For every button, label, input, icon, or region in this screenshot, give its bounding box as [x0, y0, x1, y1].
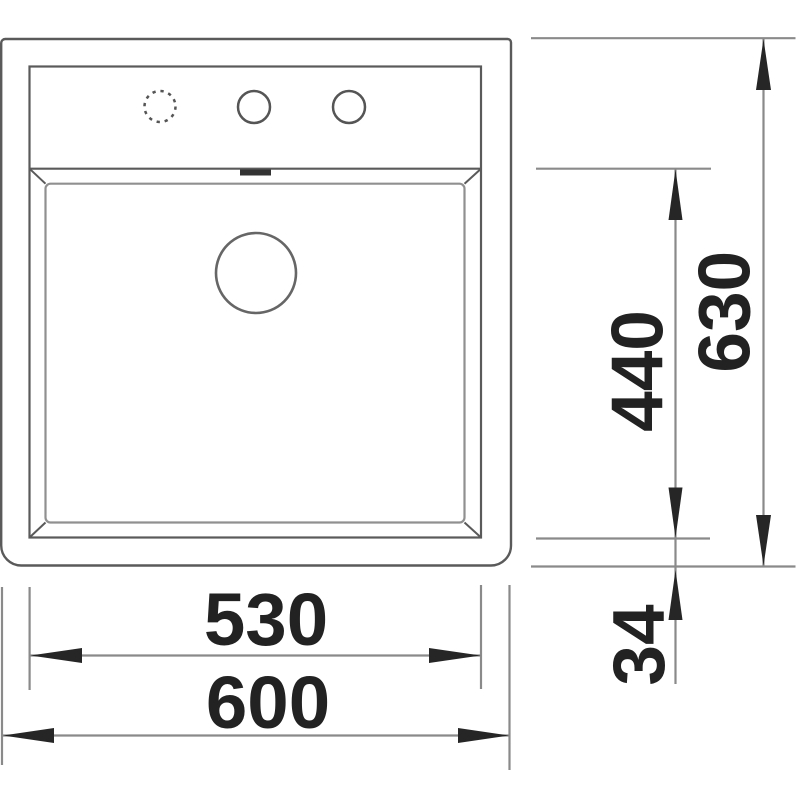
svg-text:440: 440 [598, 310, 679, 432]
svg-text:34: 34 [599, 604, 680, 686]
svg-text:630: 630 [685, 251, 766, 373]
svg-text:600: 600 [206, 661, 330, 744]
svg-text:530: 530 [204, 578, 328, 661]
